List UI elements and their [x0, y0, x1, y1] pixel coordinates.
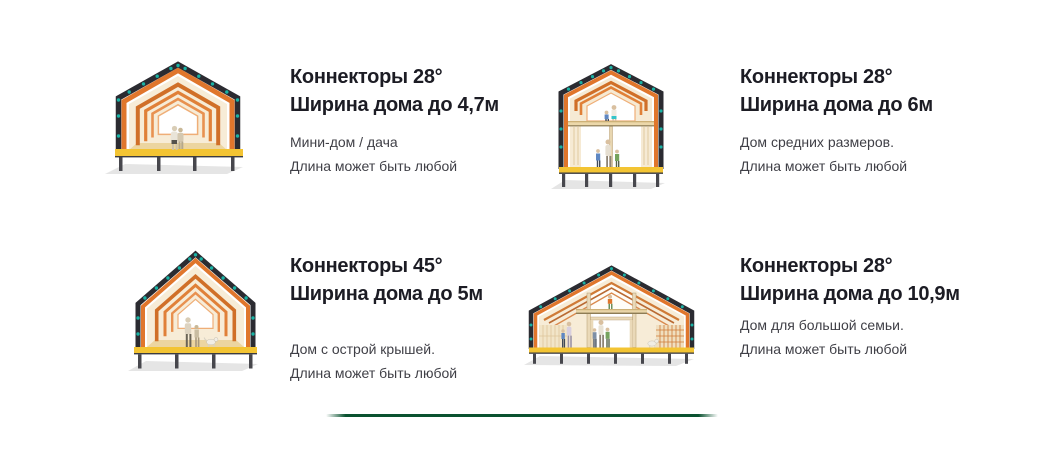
floor-underline: [134, 353, 257, 354]
card-1-desc-line2: Длина может быть любой: [290, 154, 457, 178]
house-28deg-single-story-icon: [103, 60, 253, 180]
floor-deck-edge: [134, 347, 257, 353]
card-4-desc-line1: Дом для большой семьи.: [740, 313, 907, 337]
house-card-2-illustration: [551, 63, 671, 193]
mezzanine-deck: [576, 309, 647, 314]
mezzanine-post-right: [633, 293, 637, 348]
card-3-title-line2: Ширина дома до 5м: [290, 280, 483, 308]
card-2-title-line2: Ширина дома до 6м: [740, 91, 933, 119]
house-card-3-illustration: [128, 250, 263, 375]
card-1-desc-line1: Мини-дом / дача: [290, 130, 457, 154]
card-3-desc-line1: Дом с острой крышей.: [290, 337, 457, 361]
card-2-desc-line2: Длина может быть любой: [740, 154, 907, 178]
house-28deg-two-story-icon: [551, 63, 671, 193]
mezzanine-floor: [566, 121, 656, 126]
card-4-title-line1: Коннекторы 28°: [740, 252, 960, 280]
house-card-1-description: Мини-дом / дача Длина может быть любой: [290, 130, 457, 178]
house-card-1-title: Коннекторы 28° Ширина дома до 4,7м: [290, 63, 499, 119]
card-4-desc-line2: Длина может быть любой: [740, 337, 907, 361]
floor-deck-edge: [115, 149, 243, 156]
floor-deck-edge: [559, 167, 663, 173]
house-card-4-illustration: [524, 263, 699, 368]
house-card-1-illustration: [103, 60, 253, 180]
house-card-2-title: Коннекторы 28° Ширина дома до 6м: [740, 63, 933, 119]
floor-underline: [115, 156, 243, 157]
interior-floor: [129, 143, 227, 150]
card-3-desc-line2: Длина может быть любой: [290, 361, 457, 385]
card-2-desc-line1: Дом средних размеров.: [740, 130, 907, 154]
card-1-title-line2: Ширина дома до 4,7м: [290, 91, 499, 119]
card-1-title-line1: Коннекторы 28°: [290, 63, 499, 91]
house-28deg-wide-family-icon: [524, 263, 699, 368]
card-2-title-line1: Коннекторы 28°: [740, 63, 933, 91]
house-card-2-description: Дом средних размеров. Длина может быть л…: [740, 130, 907, 178]
floor-deck-edge: [529, 348, 694, 353]
doorway-header: [591, 317, 633, 320]
house-card-3-description: Дом с острой крышей. Длина может быть лю…: [290, 337, 457, 385]
floor-underline: [529, 353, 694, 354]
house-card-3-title: Коннекторы 45° Ширина дома до 5м: [290, 252, 483, 308]
ground-shadow: [551, 180, 665, 189]
ground-shadow: [105, 164, 243, 174]
mezzanine-post-left: [587, 293, 591, 348]
house-card-4-title: Коннекторы 28° Ширина дома до 10,9м: [740, 252, 960, 308]
card-3-title-line1: Коннекторы 45°: [290, 252, 483, 280]
right-wall-panel: [656, 325, 684, 348]
section-divider-line: [326, 414, 718, 417]
house-models-section: Коннекторы 28° Ширина дома до 4,7м Мини-…: [0, 0, 1056, 450]
card-4-title-line2: Ширина дома до 10,9м: [740, 280, 960, 308]
house-45deg-single-story-icon: [128, 250, 263, 375]
floor-underline: [559, 173, 663, 174]
doorway-jamb-right: [630, 320, 633, 348]
receding-frames: [576, 83, 646, 122]
ground-shadow: [128, 361, 258, 371]
house-card-4-description: Дом для большой семьи. Длина может быть …: [740, 313, 907, 361]
